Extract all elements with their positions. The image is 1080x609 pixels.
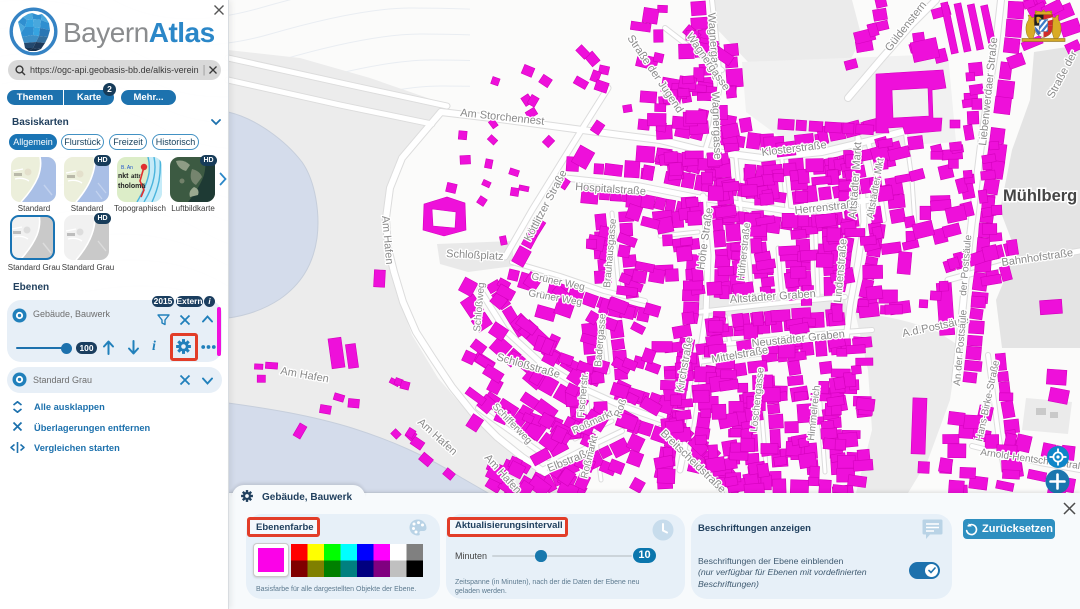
- svg-text:attr: attr: [131, 174, 141, 180]
- svg-text:tholomä: tholomä: [118, 183, 145, 190]
- svg-text:Wagnergasse: Wagnergasse: [709, 92, 723, 160]
- svg-text:B. An: B. An: [121, 165, 133, 171]
- svg-text:Mühlberg: Mühlberg: [1003, 187, 1077, 205]
- svg-text:nkt: nkt: [118, 173, 129, 180]
